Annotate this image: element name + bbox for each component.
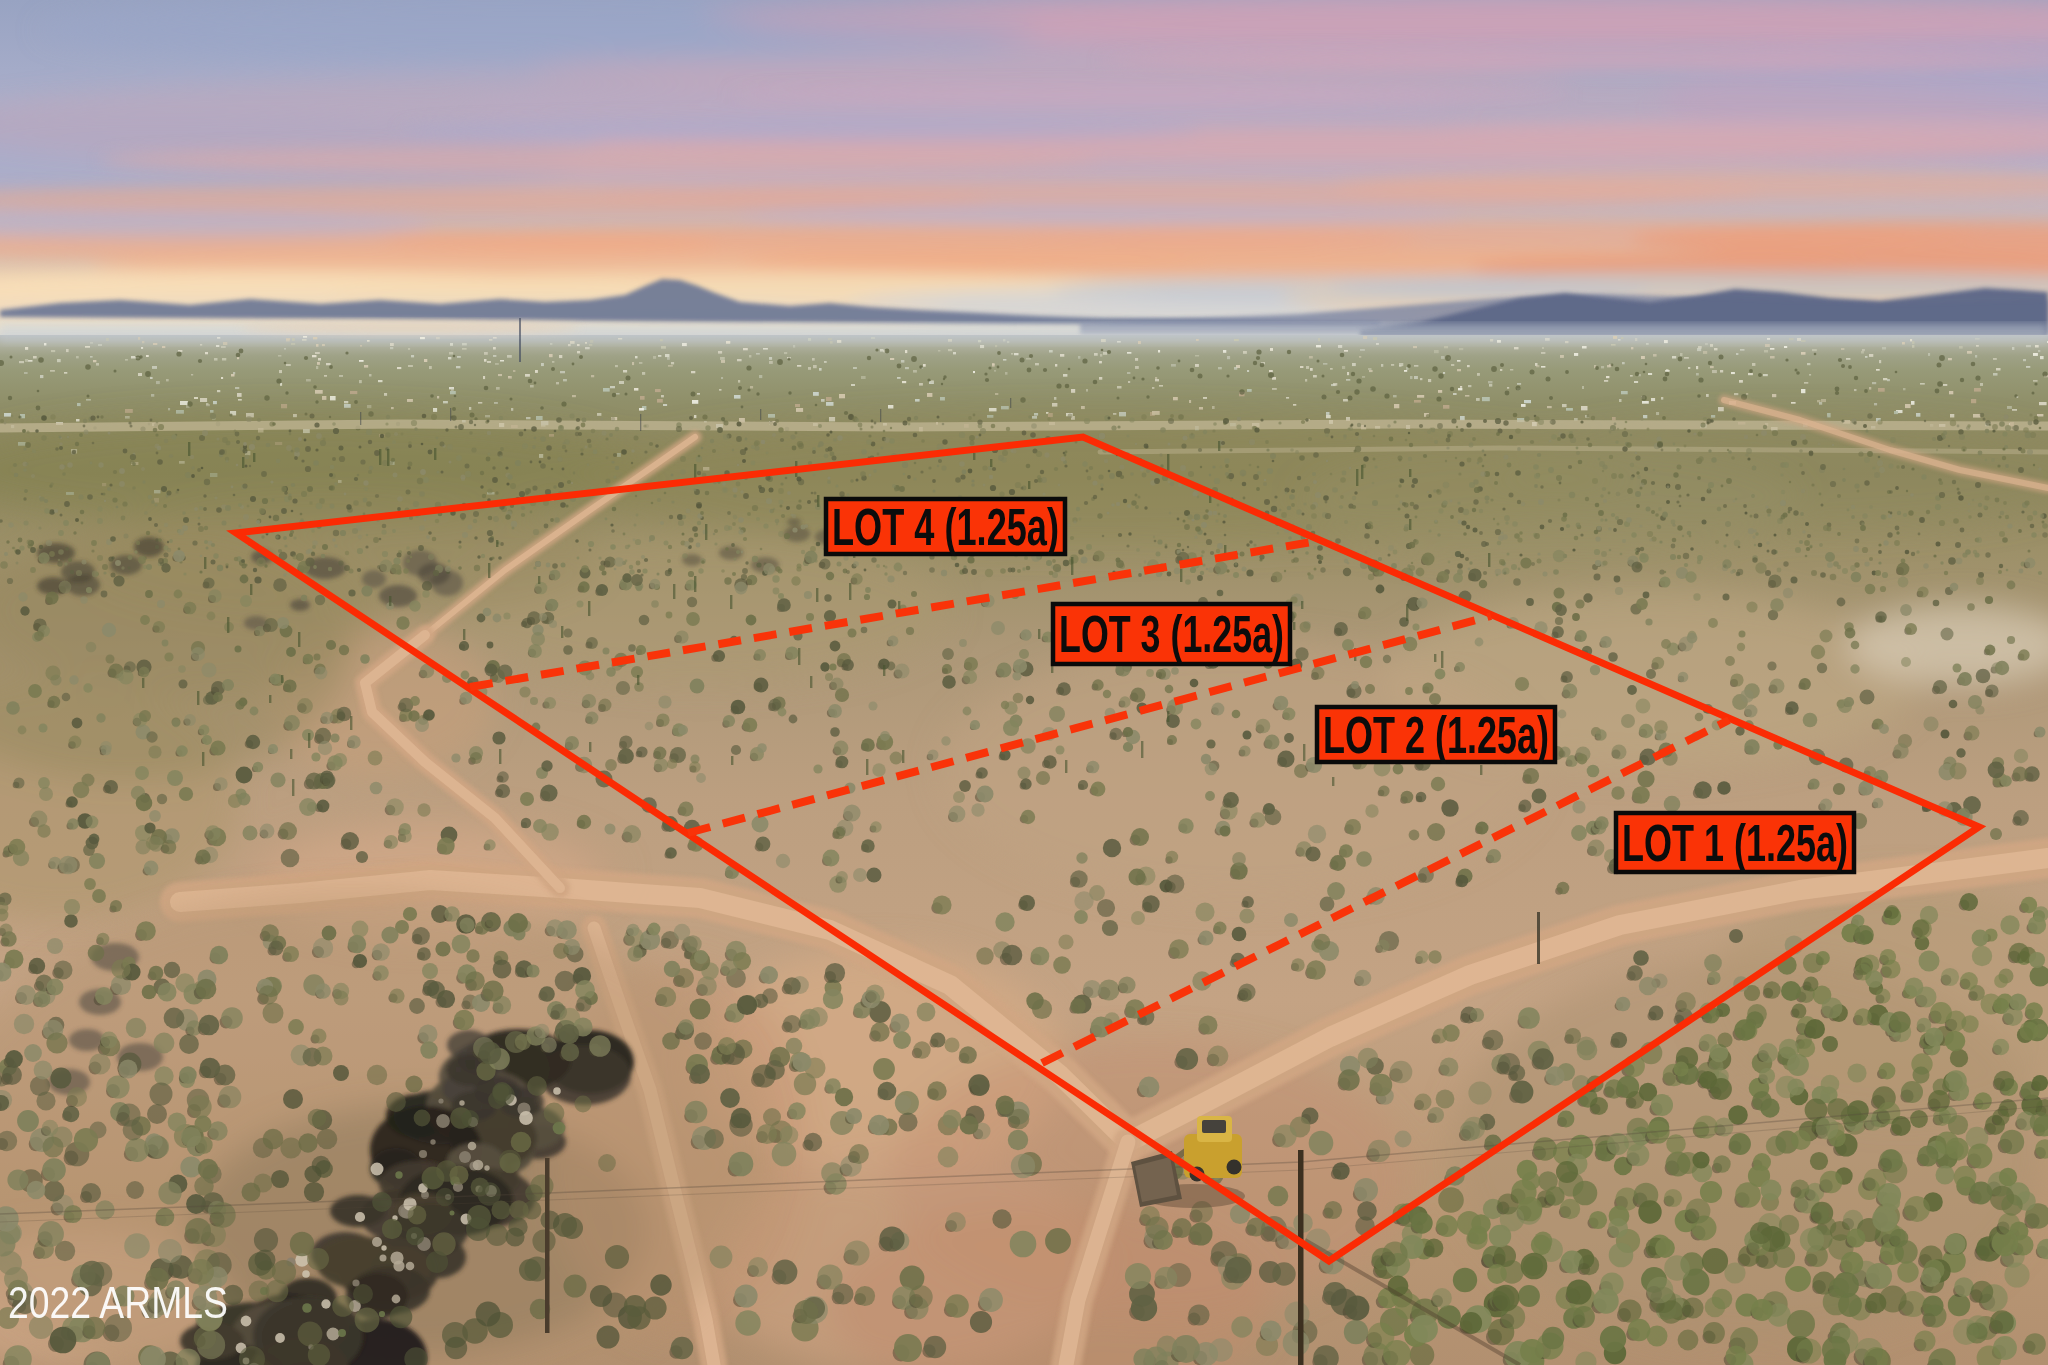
svg-text:LOT 2 (1.25a): LOT 2 (1.25a) [1323,707,1549,764]
svg-text:LOT 3 (1.25a): LOT 3 (1.25a) [1059,606,1284,663]
svg-text:2022 ARMLS: 2022 ARMLS [8,1278,228,1327]
svg-text:LOT 1 (1.25a): LOT 1 (1.25a) [1622,815,1848,872]
svg-text:LOT 4 (1.25a): LOT 4 (1.25a) [832,499,1059,556]
